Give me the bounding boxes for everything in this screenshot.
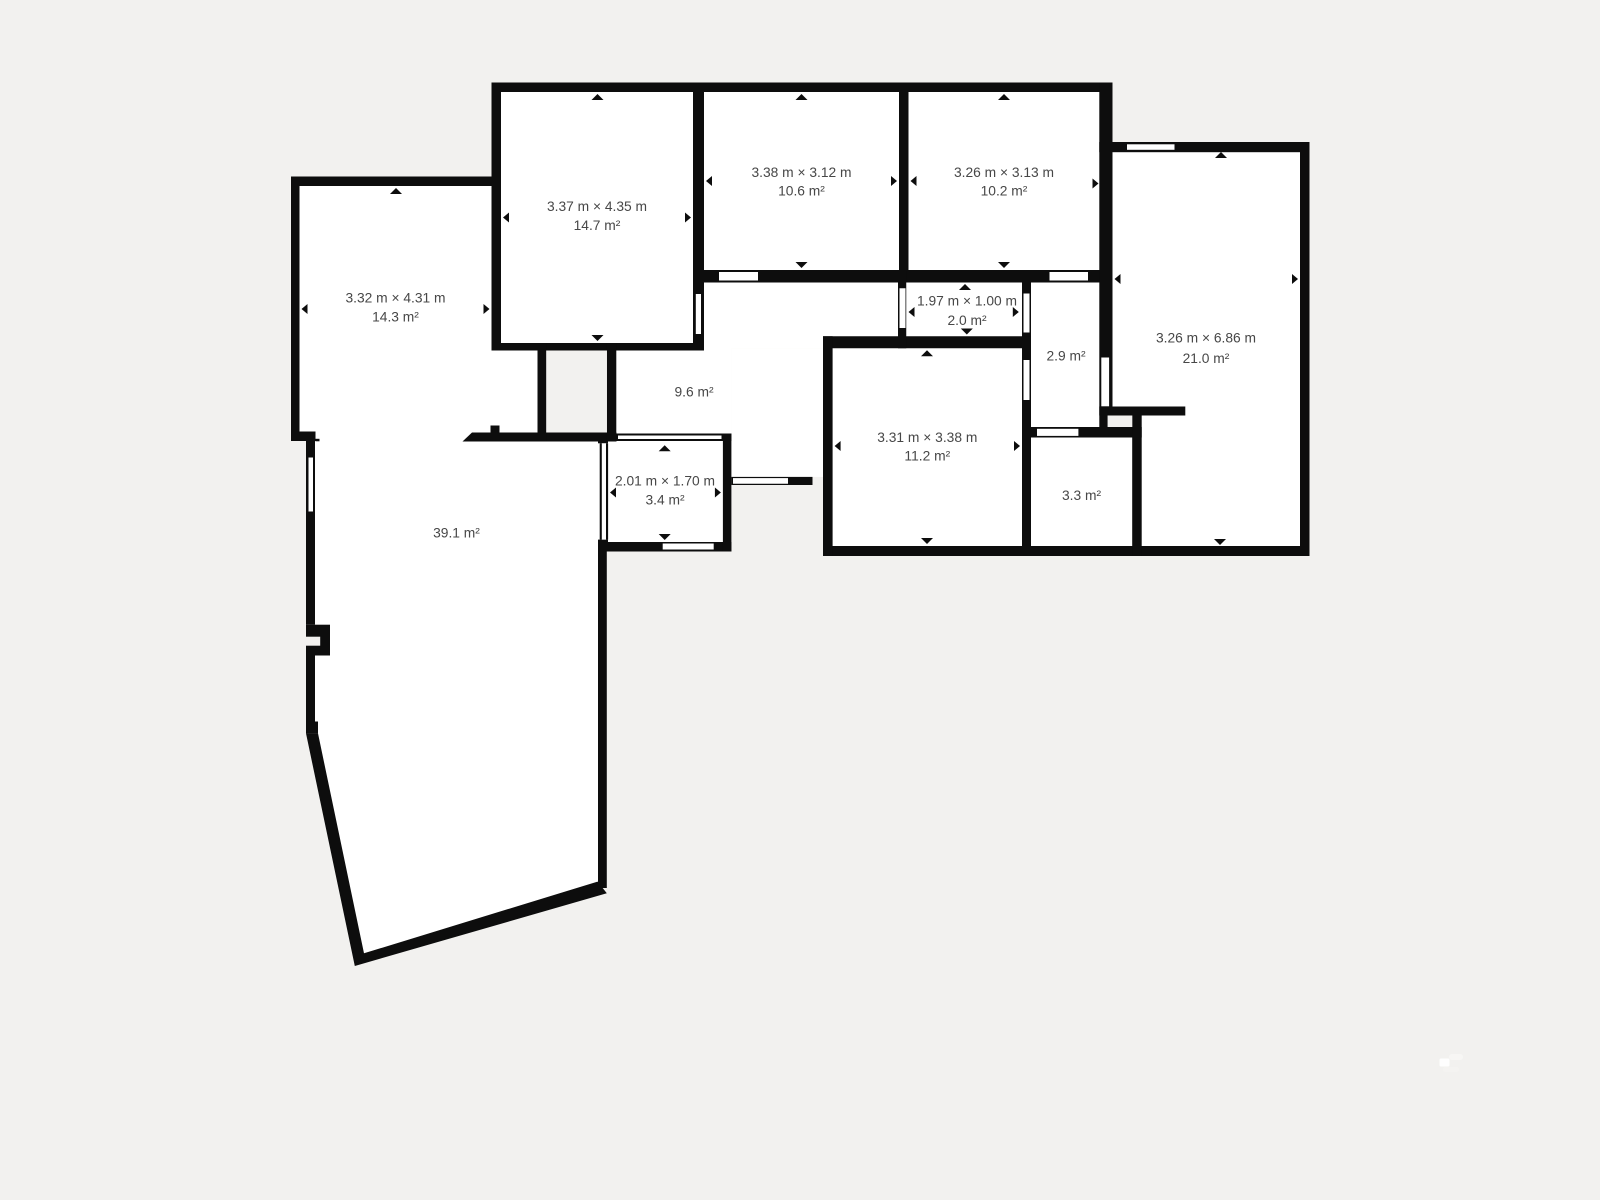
svg-text:11.2 m²: 11.2 m² [904,449,950,464]
svg-text:14.3 m²: 14.3 m² [372,310,419,325]
svg-text:3.38 m × 3.12 m: 3.38 m × 3.12 m [751,165,851,180]
svg-text:9.6 m²: 9.6 m² [674,385,714,400]
svg-text:3.26 m × 6.86 m: 3.26 m × 6.86 m [1156,330,1256,345]
svg-text:3.3 m²: 3.3 m² [1062,488,1102,503]
svg-text:21.0 m²: 21.0 m² [1183,351,1230,366]
svg-text:1.97 m × 1.00 m: 1.97 m × 1.00 m [917,294,1017,309]
svg-text:2.9 m²: 2.9 m² [1046,349,1086,364]
svg-text:14.7 m²: 14.7 m² [574,218,621,233]
svg-text:10.2 m²: 10.2 m² [981,184,1028,199]
svg-text:39.1 m²: 39.1 m² [433,526,480,541]
svg-text:2.0 m²: 2.0 m² [947,313,987,328]
svg-text:3.32 m × 4.31 m: 3.32 m × 4.31 m [345,291,445,306]
svg-text:3.31 m × 3.38 m: 3.31 m × 3.38 m [877,430,977,445]
svg-text:10.6 m²: 10.6 m² [778,184,825,199]
svg-text:3.26 m × 3.13 m: 3.26 m × 3.13 m [954,165,1054,180]
svg-text:3.37 m × 4.35 m: 3.37 m × 4.35 m [547,199,647,214]
svg-text:3.4 m²: 3.4 m² [645,492,685,507]
svg-text:2.01 m × 1.70 m: 2.01 m × 1.70 m [615,473,715,488]
